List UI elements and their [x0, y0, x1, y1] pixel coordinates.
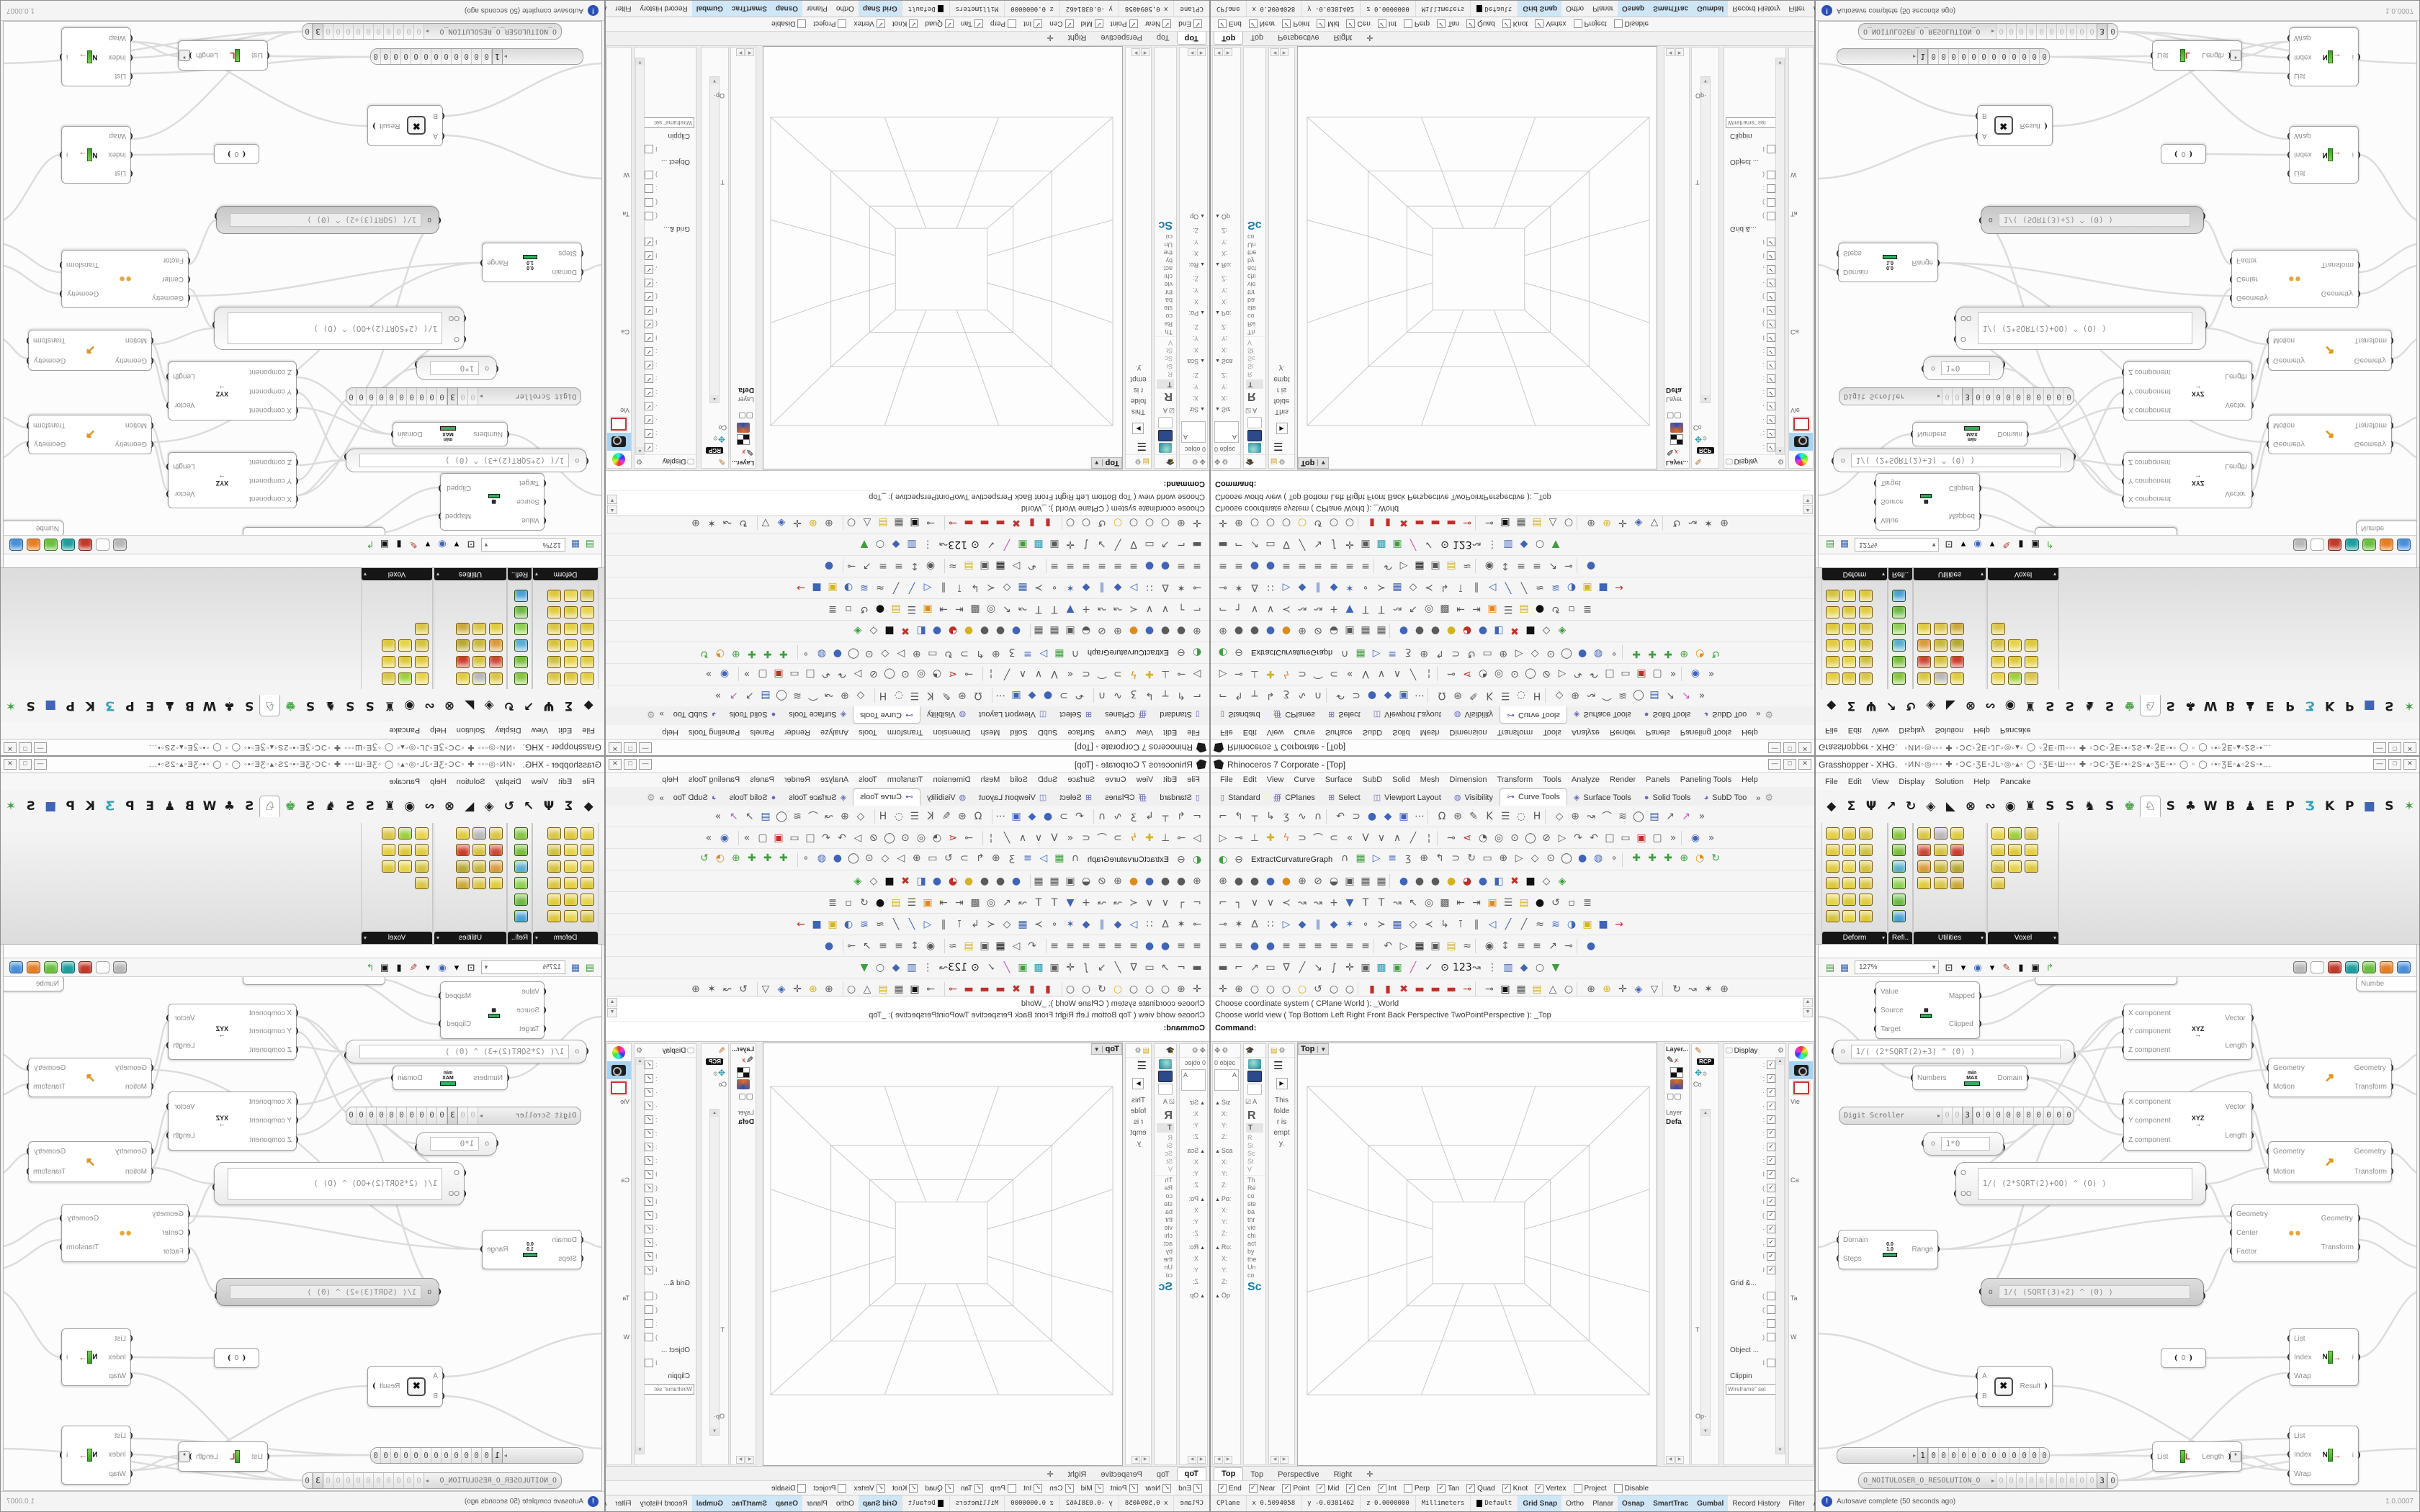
node-move-1[interactable]: GeometryMotion ↗ GeometryTransform	[2268, 415, 2392, 454]
input-port[interactable]: List	[104, 1432, 130, 1440]
input-port[interactable]: OO	[444, 1190, 464, 1198]
tool-icon[interactable]: ▫	[841, 897, 856, 909]
tool-icon[interactable]: ◁	[920, 582, 936, 594]
tool-icon[interactable]: ⋖	[945, 669, 961, 680]
component-icon[interactable]	[415, 844, 429, 856]
panel-pager[interactable]: ◀▶	[736, 1456, 754, 1464]
tool-icon[interactable]: ⊙	[861, 646, 877, 660]
output-port[interactable]: Mapped	[441, 992, 475, 1000]
component-icon[interactable]	[1859, 590, 1873, 602]
tool-icon[interactable]: ⇥	[936, 604, 951, 616]
menu-item[interactable]: Curve	[1100, 728, 1131, 737]
tool-icon[interactable]: ◍	[814, 852, 830, 867]
canvas-tool-icon[interactable]: ▾	[1985, 962, 1999, 973]
digit-cell[interactable]: 0	[472, 1448, 482, 1463]
tool-icon[interactable]: ⊙	[1507, 832, 1523, 844]
digit-cell[interactable]: 0	[2029, 49, 2039, 64]
tool-icon[interactable]: ✖	[1008, 518, 1024, 529]
component-icon[interactable]	[456, 639, 470, 652]
window-button[interactable]: ✕	[4, 742, 17, 753]
tool-icon[interactable]: Ω	[970, 690, 986, 702]
tool-icon[interactable]	[1622, 646, 1628, 660]
output-port[interactable]: Geometry	[2350, 1064, 2391, 1072]
wireframe-set-dropdown[interactable]: Wireframe" set	[636, 117, 694, 128]
tool-icon[interactable]: »	[739, 832, 755, 844]
osnap-item[interactable]: Perp	[990, 1484, 1016, 1493]
digit-cell[interactable]: 0	[431, 49, 442, 64]
rhino-titlebar[interactable]: Rhinoceros 7 Corporate - [Top] —□✕	[1211, 739, 1814, 755]
osnap-item[interactable]: Project	[1574, 19, 1607, 28]
checkbox-checked[interactable]	[1767, 361, 1775, 370]
side-tab-w[interactable]: W	[607, 170, 631, 180]
tool-icon[interactable]: ▣	[1633, 832, 1649, 844]
category-tab[interactable]: ↗	[519, 696, 539, 716]
tool-icon[interactable]: ▬	[961, 984, 977, 995]
digit-cell[interactable]: 0	[2006, 1473, 2016, 1488]
tool-icon[interactable]: ⊕	[988, 646, 1004, 660]
output-port[interactable]: Transform	[29, 336, 70, 344]
checkbox-checked[interactable]	[645, 334, 653, 343]
osnap-item[interactable]: Tan	[961, 19, 983, 28]
tool-icon[interactable]: ◐	[1215, 854, 1231, 865]
menu-item[interactable]: Surface	[1062, 728, 1100, 737]
component-icon[interactable]	[1826, 656, 1839, 668]
tool-icon[interactable]: ●	[1157, 561, 1173, 572]
tool-icon[interactable]: ⊃	[1110, 832, 1126, 844]
tool-icon[interactable]	[1326, 689, 1332, 703]
node-list-length[interactable]: List L Length *	[2152, 1441, 2242, 1472]
rcp-badge[interactable]: RCP	[707, 447, 724, 454]
side-tab-ta[interactable]: Ta	[1789, 1293, 1813, 1303]
category-tab[interactable]: P	[2280, 696, 2300, 716]
tool-icon[interactable]: ▣	[1062, 626, 1078, 637]
tool-icon[interactable]: ≋	[789, 690, 805, 702]
component-icon[interactable]	[581, 910, 594, 922]
folder-icon[interactable]: ▤	[1143, 1047, 1149, 1055]
output-port[interactable]: Vector	[169, 402, 200, 410]
component-icon[interactable]	[1917, 639, 1931, 652]
preview-ball-icon[interactable]	[27, 961, 40, 973]
digit-cell[interactable]: 0	[2046, 24, 2056, 39]
digit-cell[interactable]: 0	[468, 1107, 478, 1124]
osnap-item[interactable]: Near	[1145, 19, 1172, 28]
category-tab[interactable]: K	[81, 696, 101, 716]
tool-icon[interactable]: ≡	[1020, 646, 1036, 660]
osnap-checkbox[interactable]	[1378, 19, 1386, 28]
tool-icon[interactable]: ≡	[1513, 561, 1529, 572]
tool-icon[interactable]: ○	[1532, 539, 1548, 551]
checkbox-unchecked[interactable]	[1767, 1292, 1775, 1300]
frame-icon[interactable]	[611, 418, 627, 431]
tool-icon[interactable]: ↶	[1586, 832, 1602, 844]
component-icon[interactable]	[1842, 844, 1856, 856]
folder-icon[interactable]: ▤	[1143, 458, 1149, 466]
tool-icon[interactable]: ◉	[923, 561, 938, 572]
viewport-tab[interactable]: Perspective	[1270, 1469, 1326, 1481]
tool-icon[interactable]: ⊸	[1173, 832, 1189, 844]
grasshopper-canvas[interactable]: ▤▦ 127%▼ ⊡▾◉▾✎▮▣↱	[3, 21, 602, 568]
panel-pager[interactable]: ◀▶	[1214, 48, 1232, 56]
node-construct-domain[interactable]: Numbers minMAX Domain	[1912, 1066, 2027, 1090]
tool-icon[interactable]: ≡	[1078, 561, 1094, 572]
digit-cell[interactable]: 0	[1938, 1448, 1948, 1463]
tool-icon[interactable]: ≺	[983, 582, 999, 594]
tool-icon[interactable]: ○	[1326, 518, 1342, 529]
tool-icon[interactable]: ✓	[983, 962, 999, 973]
window-button[interactable]: —	[34, 759, 47, 770]
output-port[interactable]: Clipped	[1945, 484, 1979, 492]
tool-icon[interactable]: ⊂	[1326, 832, 1342, 844]
tool-icon[interactable]: ◆	[1110, 919, 1126, 930]
canvas-tool-icon[interactable]: ▾	[449, 962, 464, 973]
boxedit-section-header[interactable]: Siz	[1213, 1092, 1240, 1106]
tool-icon[interactable]: ╱	[1405, 539, 1421, 551]
output-port[interactable]: Vector	[2220, 1103, 2251, 1111]
tool-icon[interactable]: ▮	[1380, 518, 1396, 529]
digit-cell[interactable]: 0	[374, 24, 384, 39]
tool-icon[interactable]: ≡	[891, 561, 907, 572]
tool-icon[interactable]: ⊕	[1495, 852, 1511, 867]
tool-icon[interactable]: ●	[821, 940, 837, 952]
tool-icon[interactable]: ∫	[1078, 539, 1094, 551]
zoom-level-box[interactable]: 127%▼	[1855, 960, 1939, 974]
checkbox-checked[interactable]	[645, 279, 653, 288]
viewport-tab[interactable]: Top	[1243, 1469, 1270, 1481]
tool-icon[interactable]: ↕	[1497, 561, 1513, 572]
node-digit-scroller-1[interactable]: Digit Scroller ▸ 00 3 0000000000	[1839, 387, 2074, 405]
digit-value-cell[interactable]: 1	[1917, 1448, 1928, 1463]
tool-icon[interactable]: ▣	[825, 582, 841, 594]
category-tab[interactable]: S	[2380, 696, 2400, 716]
menu-item[interactable]: File	[1215, 728, 1238, 737]
menu-item[interactable]: File	[1820, 778, 1843, 786]
input-port[interactable]: Z component	[245, 368, 296, 376]
color-wheel-icon[interactable]	[1795, 453, 1808, 466]
component-icon[interactable]	[1892, 623, 1906, 635]
category-tab[interactable]: ↻	[499, 796, 519, 816]
display-panel-title[interactable]: Display	[663, 458, 686, 466]
status-segment[interactable]: y -0.0381462	[1059, 1495, 1119, 1511]
input-port[interactable]: List	[2290, 72, 2316, 80]
category-tab[interactable]: ∾	[1981, 796, 2001, 816]
boxedit-section-header[interactable]: Ro:	[1213, 1237, 1240, 1251]
status-toggle[interactable]: Osnap	[1618, 1, 1649, 17]
tool-icon[interactable]: ▬	[992, 518, 1008, 529]
input-port[interactable]: Motion	[111, 336, 151, 344]
menu-item[interactable]: Transform	[1492, 775, 1538, 784]
tool-icon[interactable]: ▬	[1215, 962, 1231, 973]
canvas-tool-icon[interactable]: ✎	[1999, 539, 2014, 551]
component-icon[interactable]	[564, 910, 578, 922]
digit-cell[interactable]: 0	[2003, 1107, 2013, 1124]
tool-icon[interactable]: ◁	[920, 919, 936, 930]
component-icon[interactable]	[581, 672, 594, 685]
category-tab[interactable]: K	[2320, 796, 2340, 816]
default-layer-name[interactable]: Defa	[1664, 385, 1689, 395]
tool-icon[interactable]: ◑	[1564, 582, 1579, 594]
osnap-item[interactable]: Project	[813, 19, 846, 28]
menu-item[interactable]: Curve	[1289, 728, 1319, 737]
status-segment[interactable]: x 0.5094058	[1247, 1495, 1302, 1511]
tool-icon[interactable]: ▷	[1278, 919, 1294, 930]
tool-icon[interactable]: ⊥	[1247, 832, 1263, 844]
component-icon[interactable]	[382, 656, 395, 668]
layer-panel-header[interactable]: Layer...	[1664, 458, 1689, 468]
tool-icon[interactable]: ↖	[1405, 897, 1421, 909]
menu-item[interactable]: Help	[425, 778, 452, 786]
component-icon[interactable]	[564, 606, 578, 618]
tool-icon[interactable]: ⊖	[1231, 854, 1247, 865]
tool-icon[interactable]: ◈	[774, 518, 789, 529]
tool-icon[interactable]: ●	[830, 646, 846, 660]
scroller-arrow[interactable]: ▸	[1936, 393, 1942, 400]
tool-icon[interactable]: ↗	[1247, 962, 1263, 973]
tool-icon[interactable]: ▣	[1358, 539, 1373, 551]
tool-icon[interactable]: ◇	[1405, 582, 1421, 594]
osnap-item[interactable]: Disable	[1614, 19, 1649, 28]
layer-panel-header[interactable]: Layer...	[1664, 1044, 1689, 1054]
tool-icon[interactable]: ◔	[712, 646, 728, 660]
category-tab[interactable]: ♚	[2120, 696, 2140, 716]
checkbox-checked[interactable]	[1767, 1211, 1775, 1220]
digit-cell[interactable]: 0	[367, 388, 377, 405]
tool-icon[interactable]: ▬	[977, 984, 992, 995]
tool-icon[interactable]	[938, 516, 945, 531]
toolbar-tab[interactable]: ∰ CPlanes	[1267, 706, 1322, 722]
output-port[interactable]: Length	[192, 52, 223, 60]
tool-icon[interactable]: ◁	[1484, 919, 1500, 930]
preview-ball-icon[interactable]	[61, 539, 75, 551]
digit-cell[interactable]: 0	[2056, 1473, 2066, 1488]
tool-icon[interactable]: ⌒	[805, 809, 821, 824]
file-icon[interactable]: ▦	[568, 539, 583, 551]
tool-icon[interactable]: ○	[1110, 984, 1126, 995]
hamburger-icon[interactable]: ☰	[1269, 438, 1294, 454]
tool-icon[interactable]: ✖	[1396, 984, 1412, 995]
tool-icon[interactable]: ⊛	[954, 811, 970, 822]
tool-icon[interactable]: ▩	[1373, 539, 1389, 551]
category-tab[interactable]: E	[140, 696, 160, 716]
tool-icon[interactable]: →	[1611, 919, 1627, 930]
tool-icon[interactable]: ⋮	[920, 962, 936, 973]
input-port[interactable]: o	[1924, 364, 1940, 372]
category-tab[interactable]: Ψ	[1861, 696, 1881, 716]
tool-icon[interactable]: ↶	[1072, 690, 1088, 702]
checkbox-checked[interactable]	[1767, 1115, 1775, 1124]
tool-icon[interactable]: ●	[1583, 561, 1599, 572]
digit-cell[interactable]: 0	[397, 388, 407, 405]
tool-icon[interactable]: ✛	[1615, 984, 1631, 995]
input-port[interactable]: B	[1978, 1392, 1991, 1400]
checkbox-checked[interactable]	[645, 348, 653, 356]
digit-cell[interactable]: 0	[1989, 1448, 1999, 1463]
menu-item[interactable]: Dimension	[928, 728, 976, 737]
tool-icon[interactable]: ≻	[1031, 582, 1047, 594]
digit-cell[interactable]: 0	[371, 1448, 381, 1463]
tool-icon[interactable]: ⌐	[1173, 962, 1189, 973]
digit-cell[interactable]: 0	[417, 388, 427, 405]
component-icon[interactable]	[514, 656, 528, 668]
checkbox-unchecked[interactable]	[645, 1319, 653, 1328]
input-port[interactable]: o	[1834, 1048, 1850, 1056]
tool-icon[interactable]: ⌒	[1599, 689, 1615, 703]
checkbox-checked[interactable]	[1767, 307, 1775, 315]
checkbox-checked[interactable]	[645, 1156, 653, 1165]
digit-cell[interactable]: 0	[442, 1448, 452, 1463]
category-tab[interactable]: ✶	[2399, 796, 2419, 816]
tool-icon[interactable]: ↗	[1662, 690, 1678, 702]
osnap-checkbox[interactable]	[1162, 1484, 1171, 1493]
osnap-checkbox[interactable]	[1282, 1484, 1291, 1493]
tool-icon[interactable]: ⊃	[1294, 669, 1310, 680]
tool-icon[interactable]: ⇤	[1453, 897, 1469, 909]
output-port[interactable]: Domain	[393, 1074, 426, 1082]
menu-item[interactable]: Paneling Tools	[684, 728, 745, 737]
osnap-checkbox[interactable]	[1193, 19, 1202, 28]
output-port[interactable]: Length	[2220, 373, 2251, 381]
input-port[interactable]: Geometry	[2232, 1210, 2272, 1218]
chevron-down-icon[interactable]: ▼	[1931, 964, 1937, 971]
category-tab[interactable]: ♟	[160, 696, 180, 716]
checkbox-unchecked[interactable]	[645, 185, 653, 194]
output-port[interactable]: Length	[169, 463, 200, 471]
input-port[interactable]: Index	[2290, 1354, 2316, 1362]
tool-icon[interactable]: ↗	[859, 561, 875, 572]
tool-icon[interactable]: ▷	[1189, 669, 1205, 680]
panel-value[interactable]: 0	[2177, 1354, 2190, 1362]
tool-icon[interactable]: ▩	[1437, 604, 1453, 616]
tool-icon[interactable]: ╱	[1516, 919, 1532, 930]
tool-icon[interactable]: ⊸	[945, 984, 961, 995]
menu-item[interactable]: Analyze	[1567, 728, 1605, 737]
tool-icon[interactable]: ↝	[1110, 604, 1126, 616]
tool-icon[interactable]: ○	[1126, 518, 1142, 529]
tool-icon[interactable]: ≡	[1110, 561, 1126, 572]
viewport-tab[interactable]: Right	[1327, 1469, 1360, 1481]
tool-icon[interactable]: ⊕	[1583, 984, 1599, 995]
scroll-down-icon[interactable]: ▼	[1803, 1008, 1813, 1017]
input-port[interactable]: Wrap	[2290, 132, 2316, 140]
category-tab[interactable]: Σ	[1842, 796, 1862, 816]
osnap-checkbox[interactable]	[1193, 1484, 1202, 1493]
component-icon[interactable]	[398, 639, 412, 652]
tool-icon[interactable]: ✚	[1660, 646, 1676, 660]
osnap-item[interactable]: Cen	[1346, 1484, 1370, 1493]
status-toggle[interactable]: Ortho	[1561, 1, 1588, 17]
checkbox-checked[interactable]	[1767, 279, 1775, 288]
input-port[interactable]: Value	[512, 988, 544, 996]
node-move-2[interactable]: GeometryMotion ↗ GeometryTransform	[2268, 330, 2392, 371]
menu-item[interactable]: Display	[490, 778, 526, 786]
tool-icon[interactable]: ∨	[1247, 897, 1263, 909]
osnap-item[interactable]: Tan	[1437, 1484, 1459, 1493]
tool-icon[interactable]	[869, 809, 875, 824]
expand-arrow-icon[interactable]: ▶	[1276, 1078, 1288, 1089]
tool-icon[interactable]: ⊕	[837, 690, 853, 702]
tool-icon[interactable]: ⌒	[1310, 831, 1326, 845]
tool-icon[interactable]: ◔	[1692, 852, 1708, 867]
folder-icon[interactable]: ▤	[1270, 458, 1277, 466]
output-port[interactable]: Result	[2016, 1382, 2045, 1390]
component-icon[interactable]	[1859, 877, 1873, 889]
output-port[interactable]: Transform	[2317, 1243, 2358, 1251]
panel-value[interactable]: 0	[230, 150, 243, 158]
tool-icon[interactable]: ▥	[1500, 962, 1516, 973]
tool-icon[interactable]: ▣	[1579, 919, 1595, 930]
tool-icon[interactable]: H	[875, 690, 891, 702]
window-button[interactable]: □	[2388, 759, 2401, 770]
tool-icon[interactable]: ⊸	[923, 984, 938, 995]
digit-cell[interactable]: 0	[2013, 1107, 2023, 1124]
tool-icon[interactable]: ∫	[1326, 539, 1342, 551]
tool-icon[interactable]: ↝	[1389, 897, 1405, 909]
input-port[interactable]: o	[1981, 1288, 1997, 1296]
digit-cell[interactable]: 0	[2013, 388, 2023, 405]
tool-icon[interactable]: ▬	[977, 518, 992, 529]
component-icon[interactable]	[456, 827, 470, 840]
status-toggle[interactable]: Osnap	[1618, 1495, 1649, 1511]
boxedit-section-header[interactable]: Op	[1180, 213, 1207, 227]
osnap-checkbox[interactable]	[1034, 1484, 1042, 1493]
tool-icon[interactable]: ●	[1263, 940, 1278, 952]
menu-item[interactable]: Mesh	[1415, 775, 1445, 784]
category-tab[interactable]: S	[2161, 796, 2181, 816]
tool-icon[interactable]: ┐	[1173, 604, 1189, 616]
tool-icon[interactable]: 123	[951, 539, 967, 551]
status-segment[interactable]: y -0.0381462	[1301, 1, 1361, 17]
component-icon[interactable]	[1842, 606, 1856, 618]
tool-icon[interactable]: ◯	[1559, 646, 1574, 660]
osnap-checkbox[interactable]	[1614, 19, 1623, 28]
checkbox-unchecked[interactable]	[645, 1359, 653, 1367]
input-port[interactable]: Factor	[148, 1248, 188, 1256]
camera-tab-active[interactable]	[607, 433, 631, 451]
category-tab[interactable]: ∾	[420, 696, 440, 716]
osnap-checkbox[interactable]	[1574, 1484, 1582, 1493]
category-tab[interactable]: ∾	[1981, 696, 2001, 716]
tool-icon[interactable]: ∩	[1337, 646, 1353, 660]
component-icon[interactable]	[1826, 894, 1839, 906]
input-port[interactable]: X component	[245, 1098, 296, 1106]
window-button[interactable]: □	[1783, 742, 1796, 753]
tool-icon[interactable]: ⊕	[1495, 646, 1511, 660]
chevron-down-icon[interactable]: ▼	[1931, 541, 1937, 548]
category-tab[interactable]: Ʒ	[2300, 696, 2320, 716]
tool-icon[interactable]: ∘	[1358, 919, 1373, 930]
category-tab[interactable]: ↗	[1881, 796, 1901, 816]
tool-icon[interactable]: ↝	[1294, 897, 1310, 909]
osnap-checkbox[interactable]	[797, 1484, 806, 1493]
boxedit-section-header[interactable]: Op	[1213, 213, 1240, 227]
input-port[interactable]: Factor	[148, 256, 188, 264]
expression-text[interactable]: 1/( (SQRT(3)+2) ^ (0) )	[1999, 213, 2190, 227]
preview-ball-icon[interactable]	[2397, 961, 2411, 973]
tool-icon[interactable]: ●	[1574, 646, 1590, 660]
viewport-tab[interactable]: Top	[1149, 31, 1177, 43]
tool-icon[interactable]: ✚	[1263, 832, 1278, 844]
scroller-arrow[interactable]: ▸	[424, 28, 430, 35]
tool-icon[interactable]: ▣	[771, 832, 786, 844]
tool-icon[interactable]: ▦	[1373, 626, 1389, 637]
osnap-checkbox[interactable]	[1535, 1484, 1543, 1493]
preview-ball-icon[interactable]	[96, 539, 109, 551]
canvas-tool-icon[interactable]: ◉	[435, 962, 449, 973]
tool-icon[interactable]: ●	[1532, 897, 1548, 909]
osnap-checkbox[interactable]	[1317, 19, 1325, 28]
palette-group-footer[interactable]: Refi..	[508, 932, 532, 944]
tool-icon[interactable]: ≡	[1384, 646, 1400, 660]
menu-item[interactable]: Panels	[1641, 775, 1675, 784]
